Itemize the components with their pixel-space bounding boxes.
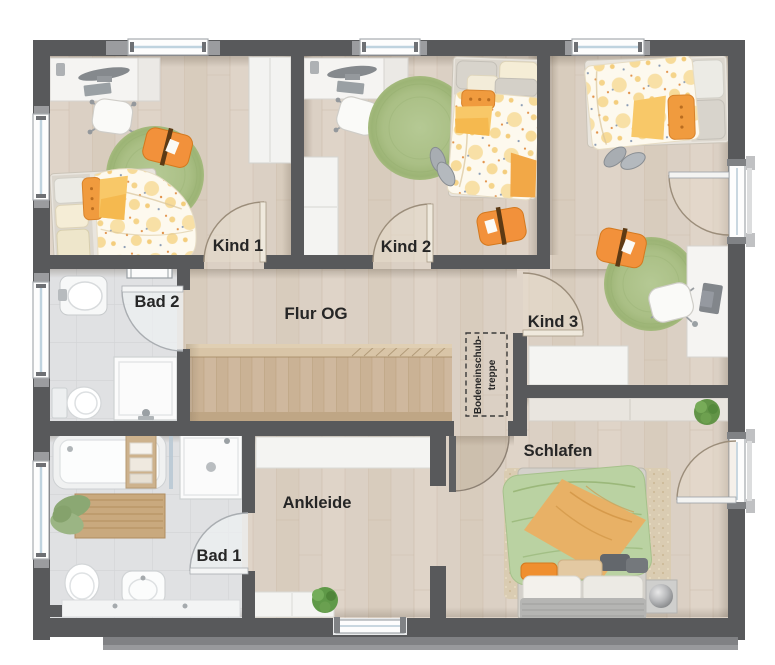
svg-text:Flur OG: Flur OG [284,304,347,323]
svg-text:treppe: treppe [487,359,498,390]
svg-text:Ankleide: Ankleide [283,494,352,512]
svg-text:Bad 2: Bad 2 [135,293,180,311]
svg-text:Kind 2: Kind 2 [381,238,431,256]
svg-text:Kind 3: Kind 3 [528,313,578,331]
svg-text:Schlafen: Schlafen [524,442,593,460]
svg-text:Bodeneinschub-: Bodeneinschub- [473,336,484,414]
svg-text:Bad 1: Bad 1 [197,547,242,565]
svg-text:Kind 1: Kind 1 [213,237,263,255]
